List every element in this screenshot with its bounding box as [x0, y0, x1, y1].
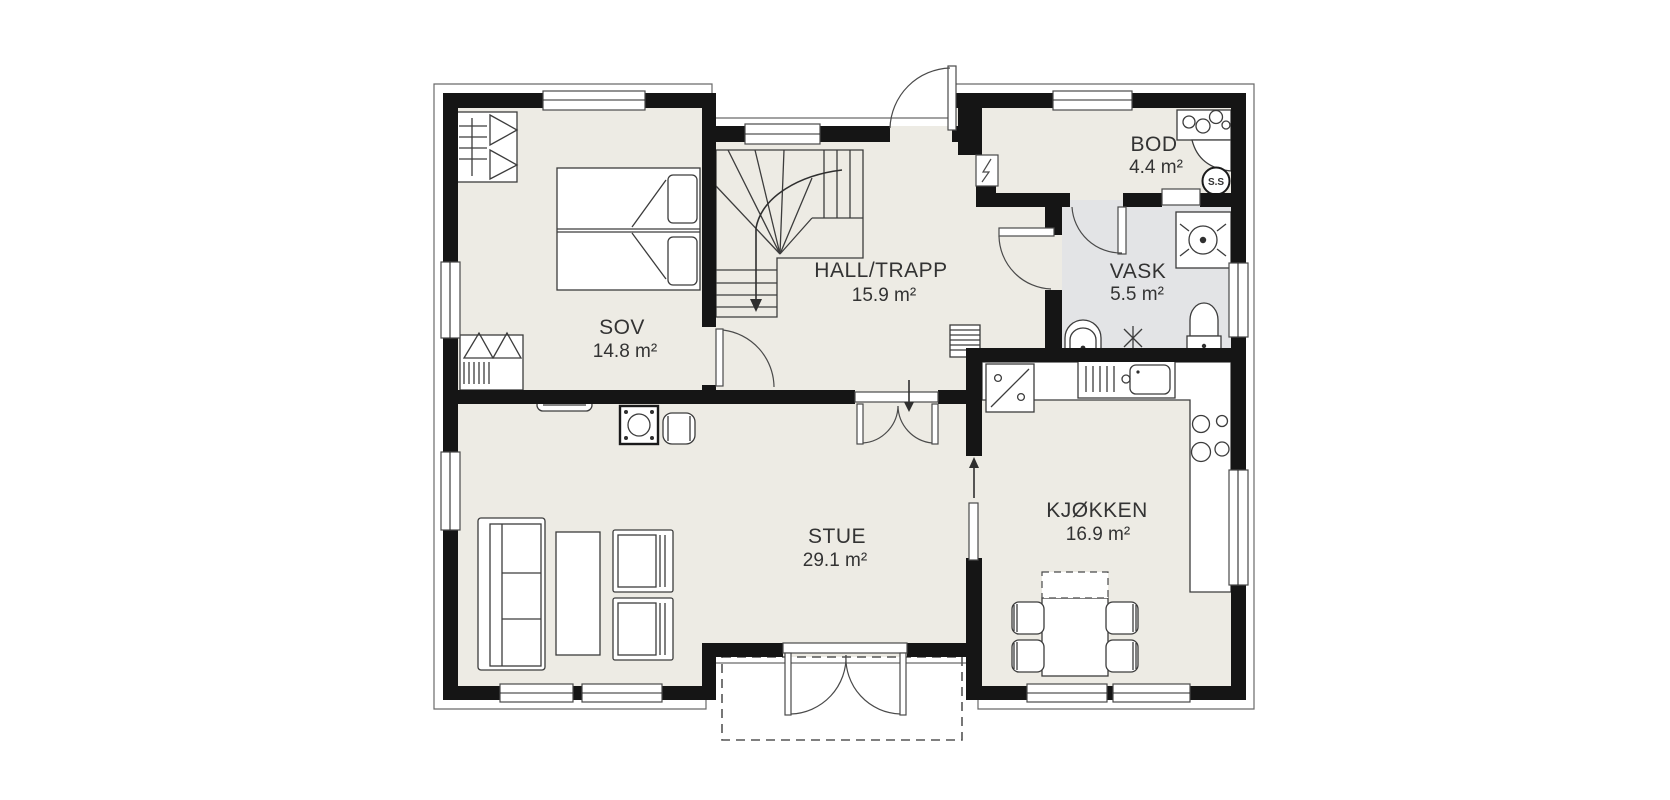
- window: [745, 124, 820, 144]
- room-area-kjokken: 16.9 m²: [1066, 524, 1130, 545]
- room-label-hall: HALL/TRAPP: [814, 259, 947, 282]
- armchair-icon: [613, 530, 673, 592]
- room-label-kjokken: KJØKKEN: [1046, 499, 1148, 522]
- bed-icon: [557, 168, 700, 290]
- sofa-icon: [478, 518, 545, 670]
- dining-chair-icon: [1106, 602, 1138, 634]
- floor-plan-page: S.S: [0, 0, 1670, 800]
- coffee-table-icon: [556, 532, 600, 655]
- fuse-box-icon: [976, 155, 998, 186]
- top-recess: [716, 80, 956, 126]
- window: [1113, 684, 1190, 702]
- ss-tank-label: S.S: [1208, 177, 1224, 188]
- room-label-vask: VASK: [1110, 260, 1166, 283]
- dining-chair-icon: [1012, 602, 1044, 634]
- armchair-icon: [613, 598, 673, 660]
- window: [441, 452, 460, 530]
- room-area-vask: 5.5 m²: [1110, 284, 1164, 305]
- window: [441, 262, 460, 338]
- window: [1229, 263, 1248, 337]
- window: [543, 91, 645, 110]
- wall-hatch: [1162, 189, 1200, 205]
- dishwasher-icon: [986, 364, 1034, 412]
- wood-basket-icon: [663, 413, 695, 444]
- dining-table-icon: [1042, 572, 1108, 676]
- wardrobe-icon: [457, 112, 517, 182]
- dining-chair-icon: [1106, 640, 1138, 672]
- woodstove-icon: [620, 406, 658, 444]
- room-label-sov: SOV: [599, 316, 645, 339]
- floor-plan-drawing: S.S: [0, 0, 1670, 800]
- room-area-sov: 14.8 m²: [593, 341, 657, 362]
- window: [1053, 91, 1132, 110]
- window: [500, 684, 573, 702]
- room-label-stue: STUE: [808, 525, 866, 548]
- room-area-stue: 29.1 m²: [803, 550, 867, 571]
- window: [582, 684, 662, 702]
- room-area-hall: 15.9 m²: [852, 285, 916, 306]
- ventilation-fan-icon: [1176, 212, 1231, 268]
- window: [1229, 470, 1248, 585]
- window: [1027, 684, 1107, 702]
- dining-chair-icon: [1012, 640, 1044, 672]
- room-label-bod: BOD: [1130, 133, 1177, 156]
- wardrobe-icon: [460, 333, 523, 390]
- ss-tank-icon: S.S: [1203, 168, 1230, 195]
- room-area-bod: 4.4 m²: [1129, 157, 1183, 178]
- kitchen-sink-icon: [1078, 360, 1175, 398]
- utility-appliance-icon: [1177, 110, 1231, 140]
